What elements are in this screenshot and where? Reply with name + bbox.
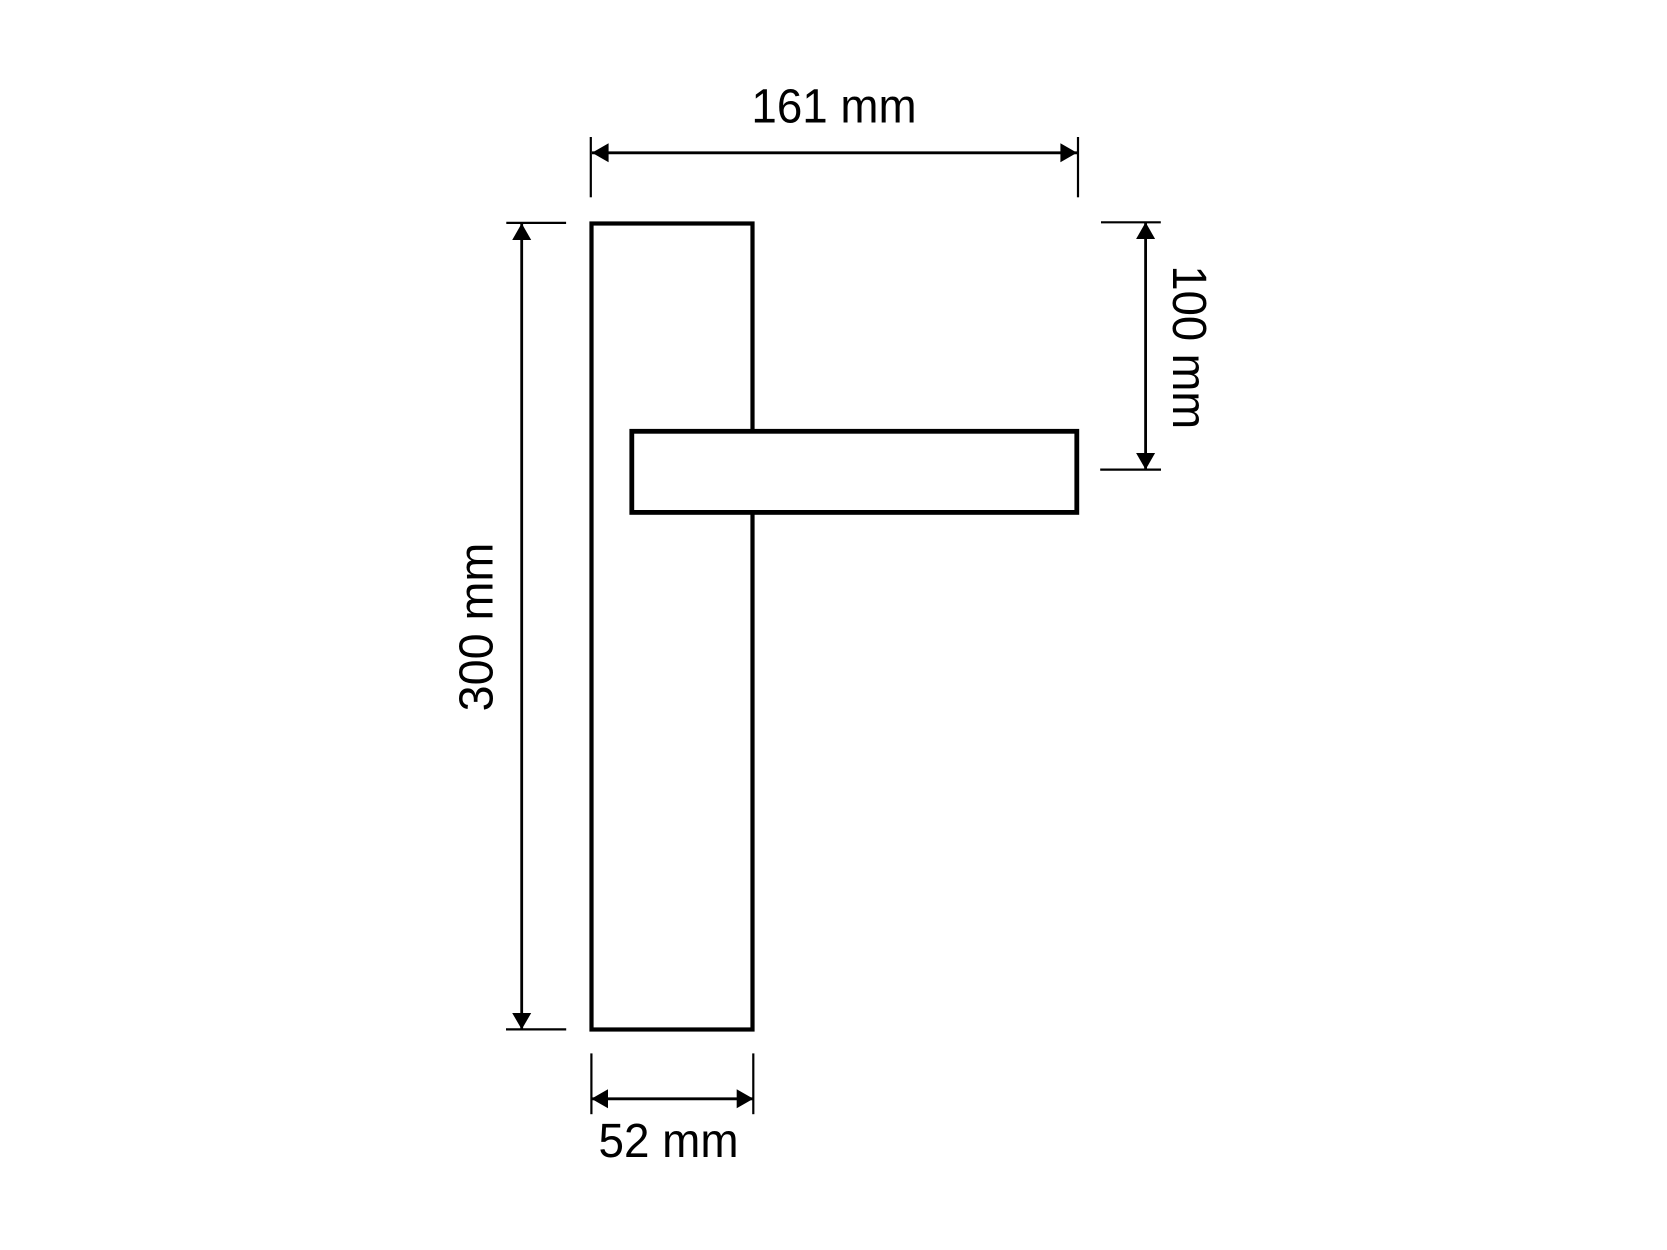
svg-text:161 mm: 161 mm bbox=[751, 80, 916, 133]
svg-text:52 mm: 52 mm bbox=[598, 1114, 738, 1167]
svg-text:100 mm: 100 mm bbox=[1163, 265, 1216, 429]
svg-text:300 mm: 300 mm bbox=[450, 543, 504, 712]
